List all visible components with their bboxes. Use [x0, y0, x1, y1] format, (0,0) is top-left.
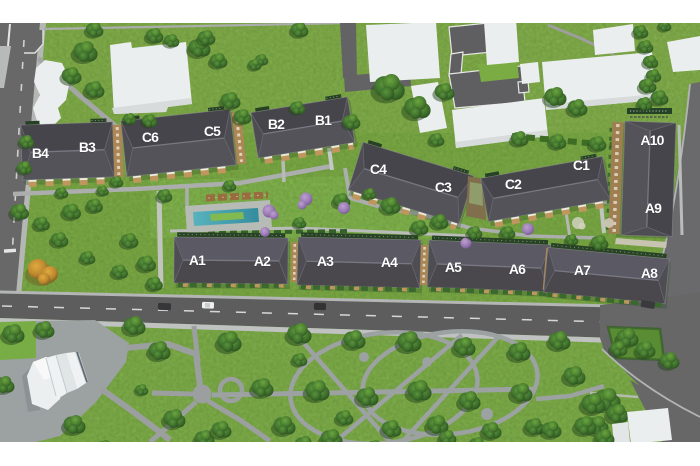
svg-text:B2: B2: [268, 116, 285, 132]
svg-text:A8: A8: [641, 265, 658, 281]
svg-text:A2: A2: [254, 253, 271, 269]
svg-text:A6: A6: [509, 261, 526, 277]
svg-text:A1: A1: [189, 252, 206, 268]
svg-text:A4: A4: [381, 254, 398, 270]
svg-text:C6: C6: [142, 129, 159, 145]
svg-text:A10: A10: [640, 132, 664, 148]
svg-text:C5: C5: [204, 123, 221, 139]
svg-text:C2: C2: [505, 176, 522, 192]
svg-text:A7: A7: [574, 262, 591, 278]
svg-text:C3: C3: [435, 179, 452, 195]
svg-text:C1: C1: [573, 157, 590, 173]
svg-text:B1: B1: [315, 112, 332, 128]
svg-text:B4: B4: [32, 145, 49, 161]
svg-text:B3: B3: [79, 139, 96, 155]
svg-text:A3: A3: [317, 253, 334, 269]
svg-text:A5: A5: [445, 259, 462, 275]
svg-text:C4: C4: [370, 161, 387, 177]
svg-text:A9: A9: [645, 200, 662, 216]
